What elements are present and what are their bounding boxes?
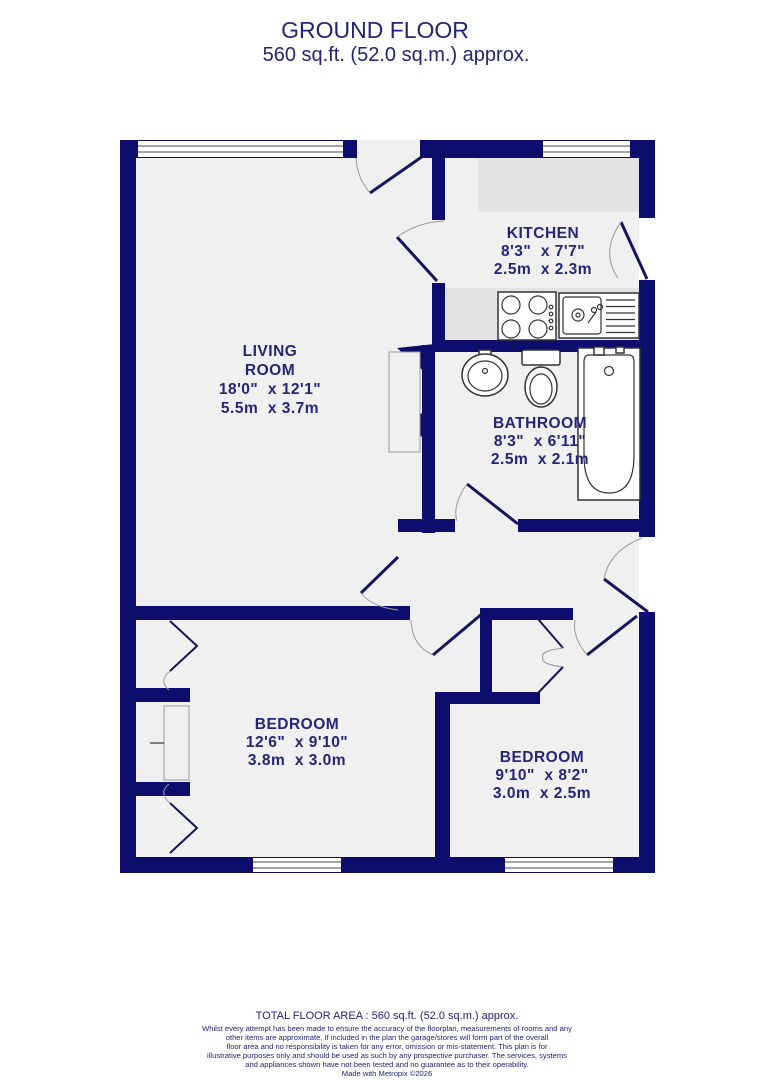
disclaimer-line: and appliances shown have not been teste… [245,1060,529,1069]
svg-text:3.8m x 3.0m: 3.8m x 3.0m [248,752,346,769]
disclaimer-line: illustrative purposes only and should be… [207,1051,567,1060]
svg-text:2.5m x 2.3m: 2.5m x 2.3m [494,261,592,278]
disclaimer-line: other items are approximate, If included… [226,1033,549,1042]
credit-line: Made with Metropix ©2026 [342,1069,432,1078]
svg-text:8'3" x 7'7": 8'3" x 7'7" [501,243,585,260]
svg-text:BATHROOM: BATHROOM [493,415,587,432]
bedroom2-window [505,858,613,872]
living-room-window [138,141,343,157]
sink [559,293,639,338]
kitchen-window [543,141,630,157]
svg-text:8'3" x 6'11": 8'3" x 6'11" [494,433,586,450]
page-subtitle: 560 sq.ft. (52.0 sq.m.) approx. [263,44,530,66]
toilet [522,350,560,407]
svg-text:KITCHEN: KITCHEN [507,225,579,242]
bathtub [578,347,640,500]
hob [498,292,556,340]
kitchen-label: KITCHEN 8'3" x 7'7" 2.5m x 2.3m [494,225,592,278]
svg-text:5.5m x 3.7m: 5.5m x 3.7m [221,400,319,417]
bedroom1-window [253,858,341,872]
disclaimer-line: floor area and no responsibility is take… [226,1042,548,1051]
footer: TOTAL FLOOR AREA : 560 sq.ft. (52.0 sq.m… [202,1010,572,1078]
svg-text:LIVING: LIVING [243,343,298,360]
svg-text:BEDROOM: BEDROOM [255,716,339,733]
kitchen-fixtures [498,292,639,340]
svg-text:12'6" x 9'10": 12'6" x 9'10" [246,734,348,751]
living-room-cupboard [389,352,420,452]
svg-text:3.0m x 2.5m: 3.0m x 2.5m [493,785,591,802]
svg-text:BEDROOM: BEDROOM [500,749,584,766]
svg-text:9'10" x 8'2": 9'10" x 8'2" [495,767,588,784]
bathroom-label: BATHROOM 8'3" x 6'11" 2.5m x 2.1m [491,415,589,468]
svg-text:ROOM: ROOM [245,362,295,379]
total-floor-area: TOTAL FLOOR AREA : 560 sq.ft. (52.0 sq.m… [256,1010,519,1022]
bedroom2-label: BEDROOM 9'10" x 8'2" 3.0m x 2.5m [493,749,591,802]
disclaimer-line: Whilst every attempt has been made to en… [202,1024,572,1033]
bedroom1-label: BEDROOM 12'6" x 9'10" 3.8m x 3.0m [246,716,348,769]
page-title: GROUND FLOOR [281,17,469,43]
floorplan-image: GROUND FLOOR 560 sq.ft. (52.0 sq.m.) app… [0,0,774,1080]
svg-text:2.5m x 2.1m: 2.5m x 2.1m [491,451,589,468]
svg-text:18'0" x 12'1": 18'0" x 12'1" [219,381,321,398]
